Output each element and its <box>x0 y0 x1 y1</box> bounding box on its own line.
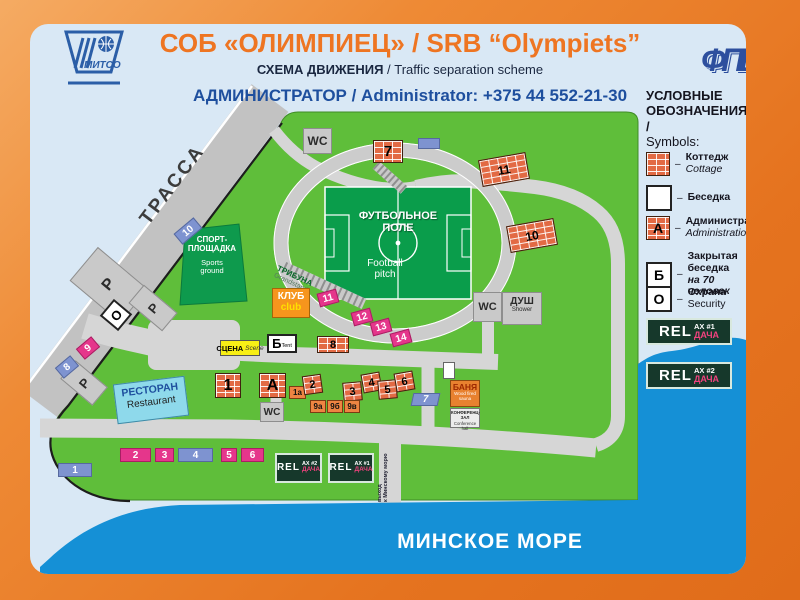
legend-label-en: Cottage <box>686 163 723 175</box>
map-panel: МИТСО СОБ «ОЛИМПИЕЦ» / SRB “Olympiets” С… <box>30 24 746 574</box>
scheme-subtitle: СХЕМА ДВИЖЕНИЯ / Traffic separation sche… <box>120 62 680 77</box>
relax-dacha: ДАЧА <box>694 331 719 340</box>
exit-line2: к Минскому морю <box>383 422 389 502</box>
closed-gazebo-swatch: Б <box>646 262 672 288</box>
conference-ru: КОНФЕРЕНЦ-ЗАЛ <box>451 411 479 420</box>
brick-swatch <box>646 152 670 176</box>
stage-ru: СЦЕНА <box>216 344 243 353</box>
relax-rel: REL <box>329 463 352 473</box>
administration-swatch: А <box>646 216 670 240</box>
minsk-sea-label: МИНСКОЕ МОРЕ <box>350 530 630 554</box>
legend-item-administration: А – АдминистрацияAdministration <box>646 216 746 240</box>
tent-en: Tent <box>281 343 291 349</box>
football-field-label-ru: ФУТБОЛЬНОЕ ПОЛЕ <box>325 210 471 234</box>
scheme-subtitle-ru: СХЕМА ДВИЖЕНИЯ <box>257 62 384 77</box>
legend-dash: – <box>677 269 683 280</box>
administrator-phone-line: АДМИНИСТРАТОР / Administrator: +375 44 5… <box>120 86 700 106</box>
legend-label-ru: Закрытая беседка <box>688 250 738 274</box>
marker-south-3: 3 <box>155 448 174 462</box>
shower-en: Shower <box>503 307 541 314</box>
shower-ru: ДУШ <box>503 296 541 307</box>
resort-scheme-poster: МИТСО СОБ «ОЛИМПИЕЦ» / SRB “Olympiets” С… <box>0 0 800 600</box>
legend-dash: – <box>675 159 681 170</box>
building-3: 3 <box>342 381 363 402</box>
legend-label-ru: Коттедж <box>686 151 729 163</box>
sports-ground-label: СПОРТ- ПЛОЩАДКА Sports ground <box>180 236 244 275</box>
legend-dash: – <box>677 294 683 305</box>
sauna-annex <box>443 362 455 379</box>
field-ru2: ПОЛЕ <box>325 222 471 234</box>
relax-dacha: ДАЧА <box>694 375 719 384</box>
tent-letter: Б <box>272 336 281 351</box>
building-7: 7 <box>373 140 403 163</box>
relax-rel: REL <box>659 324 692 339</box>
football-field-label-en: Football pitch <box>330 258 440 280</box>
legend-label-ru: Охрана <box>688 286 726 298</box>
relax-dacha: ДАЧА <box>354 467 372 474</box>
relax-rel: REL <box>277 463 300 473</box>
club-ru: КЛУБ <box>273 291 309 302</box>
legend-dash: – <box>677 193 683 204</box>
legend-item-cottage: – КоттеджCottage <box>646 152 746 176</box>
building-9b: 9б <box>327 400 343 413</box>
wc-south: WC <box>260 402 284 422</box>
building-6: 6 <box>393 370 415 392</box>
security-swatch: О <box>646 286 672 312</box>
legend-label-ru: Администрация <box>686 215 746 227</box>
legend-heading-en: Symbols: <box>646 134 746 149</box>
relax-dacha-1-legend: REL AX #1ДАЧА <box>646 318 732 345</box>
marker-south-1: 1 <box>58 463 92 477</box>
marker-south-6: 6 <box>241 448 264 462</box>
legend-heading-ru1: УСЛОВНЫЕ <box>646 88 746 103</box>
relax-rel: REL <box>659 368 692 383</box>
sauna-building: БАНЯ Wood fired sauna <box>450 380 480 407</box>
scheme-subtitle-en: / Traffic separation scheme <box>383 62 543 77</box>
sea-exit-road-label: выход к Минскому морю <box>377 422 390 502</box>
building-8: 8 <box>317 336 349 353</box>
wc-label: WC <box>473 292 502 322</box>
field-ru1: ФУТБОЛЬНОЕ <box>325 210 471 222</box>
legend-label-en: Administration <box>686 227 746 239</box>
marker-south-5: 5 <box>221 448 237 462</box>
page-title: СОБ «ОЛИМПИЕЦ» / SRB “Olympiets” <box>120 28 680 59</box>
mitso-logo-text: МИТСО <box>84 60 121 71</box>
relax-dacha-2-legend: REL AX #2ДАЧА <box>646 362 732 389</box>
club-building: КЛУБ club <box>272 288 310 318</box>
field-en2: pitch <box>330 269 440 280</box>
conference-en: Conference hall <box>451 422 479 431</box>
legend-heading-ru2: ОБОЗНАЧЕНИЯ / <box>646 103 746 134</box>
football-field <box>325 187 471 299</box>
sports-en2: ground <box>180 267 244 275</box>
stage-scene: СЦЕНА Scene <box>220 340 260 356</box>
conference-hall: КОНФЕРЕНЦ-ЗАЛ Conference hall <box>450 408 480 428</box>
wc-shower-building: WC ДУШ Shower <box>473 292 542 325</box>
marker-south-4: 4 <box>178 448 213 462</box>
fpb-logo: ФПБ <box>694 32 746 88</box>
legend-item-security: О – ОхранаSecurity <box>646 286 746 312</box>
shower-block: ДУШ Shower <box>502 292 542 325</box>
legend-dash: – <box>675 223 681 234</box>
stage-en: Scene <box>245 345 263 352</box>
legend-label-en: Security <box>688 298 726 310</box>
sauna-en2: sauna <box>451 397 479 402</box>
club-en: club <box>273 302 309 313</box>
building-administration: А <box>259 373 286 398</box>
sports-ru2: ПЛОЩАДКА <box>180 245 244 254</box>
building-1: 1 <box>215 373 241 398</box>
legend-item-gazebo: – Беседка <box>646 185 746 211</box>
building-9v: 9в <box>344 400 360 413</box>
legend-label-ru: Беседка <box>688 191 731 203</box>
marker-7: 7 <box>411 393 441 406</box>
gazebo-swatch <box>646 185 672 211</box>
relax-dacha-1-map: REL AX #1ДАЧА <box>328 453 374 483</box>
wc-north: WC <box>303 128 332 154</box>
building-9a: 9а <box>310 400 326 413</box>
tent-gazebo: Б Tent <box>267 334 297 353</box>
blue-marker <box>418 138 440 149</box>
legend-heading: УСЛОВНЫЕ ОБОЗНАЧЕНИЯ / Symbols: <box>646 88 746 149</box>
relax-dacha-2-map: REL AX #2ДАЧА <box>275 453 322 483</box>
building-2: 2 <box>302 374 323 395</box>
relax-dacha: ДАЧА <box>302 467 320 474</box>
marker-south-2: 2 <box>120 448 151 462</box>
field-en1: Football <box>330 258 440 269</box>
